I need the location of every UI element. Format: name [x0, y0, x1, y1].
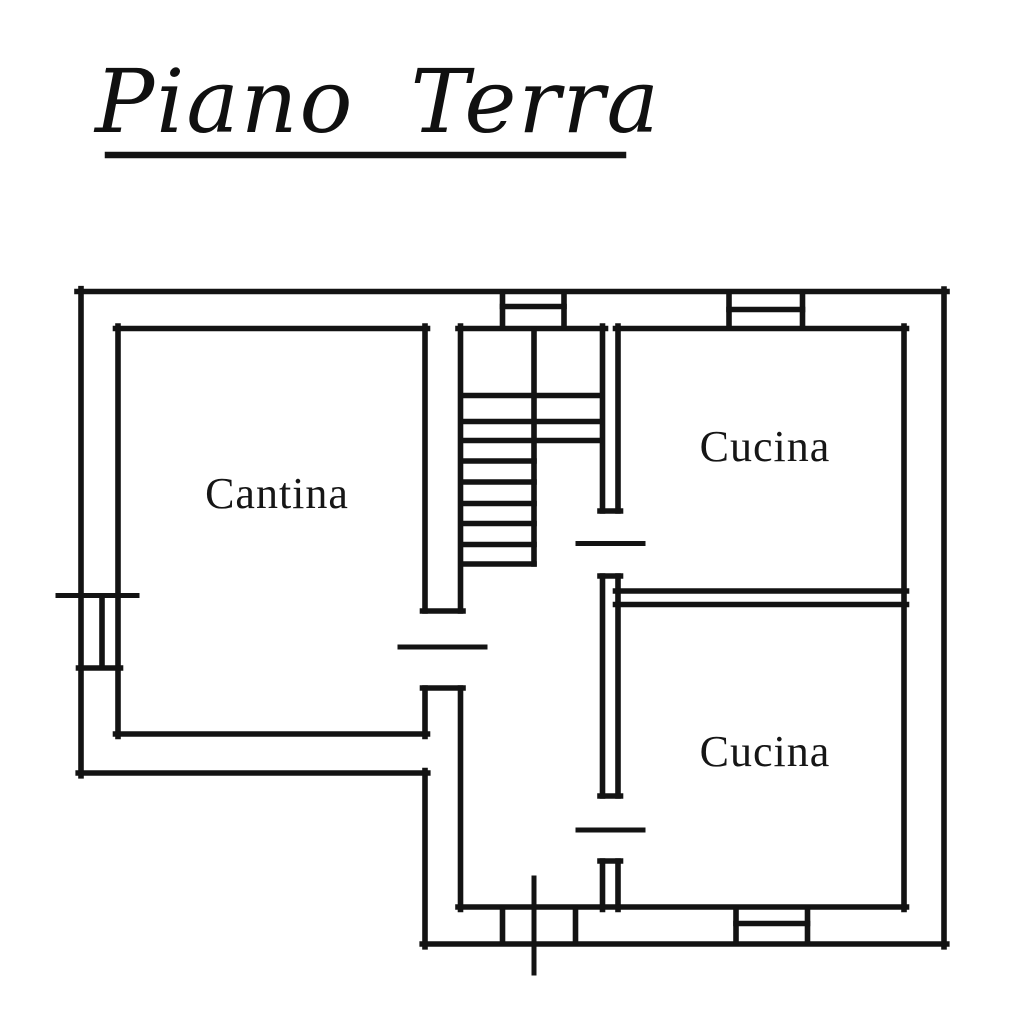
staircase — [463, 331, 600, 564]
doors — [400, 511, 643, 973]
room-label-cucina-bottom: Cucina — [700, 727, 831, 776]
title-block: Piano Terra — [93, 50, 661, 155]
floor-plan-drawing — [58, 289, 947, 973]
windows — [58, 294, 808, 942]
floor-plan-canvas: Piano Terra Cantina Cucina Cucina — [0, 0, 1024, 1024]
room-label-cucina-top: Cucina — [700, 422, 831, 471]
page-title: Piano Terra — [93, 50, 661, 153]
outer-walls — [77, 289, 947, 947]
room-label-cantina: Cantina — [205, 469, 349, 518]
floor-plan-page: Piano Terra Cantina Cucina Cucina — [0, 0, 1024, 1024]
room-labels: Cantina Cucina Cucina — [205, 422, 830, 776]
inner-walls — [116, 326, 907, 910]
